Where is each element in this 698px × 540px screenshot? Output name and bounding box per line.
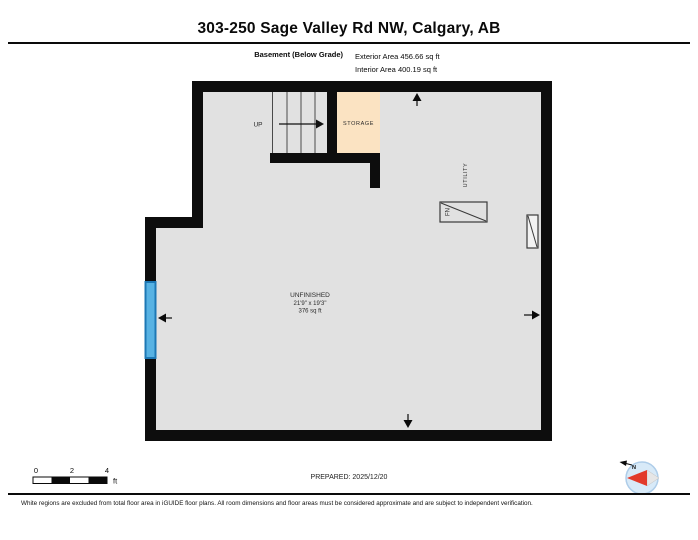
compass-north-label: N bbox=[632, 465, 636, 471]
unfinished-room-area: 376 sq ft bbox=[298, 309, 321, 315]
unfinished-room-label: UNFINISHED bbox=[290, 292, 330, 299]
storage-right-wall bbox=[370, 163, 380, 188]
footer-divider bbox=[8, 493, 690, 495]
floorplan-drawing: UP STORAGE UTILITY FN UNFINISHED 21'9" x… bbox=[0, 0, 698, 540]
utility-label: UTILITY bbox=[463, 163, 469, 188]
floorplan-page: 303-250 Sage Valley Rd NW, Calgary, AB B… bbox=[0, 0, 698, 540]
stairwell-right-wall bbox=[327, 92, 337, 153]
panel-symbol bbox=[527, 215, 538, 248]
disclaimer-text: White regions are excluded from total fl… bbox=[21, 500, 641, 507]
prepared-date: PREPARED: 2025/12/20 bbox=[0, 474, 698, 481]
window bbox=[146, 282, 156, 358]
furnace-label: FN bbox=[446, 208, 452, 216]
storage-label: STORAGE bbox=[343, 121, 374, 127]
stairwell-bottom-wall bbox=[270, 153, 380, 163]
stairs-up-label: UP bbox=[253, 122, 262, 129]
unfinished-room-dimensions: 21'9" x 19'3" bbox=[294, 301, 327, 307]
